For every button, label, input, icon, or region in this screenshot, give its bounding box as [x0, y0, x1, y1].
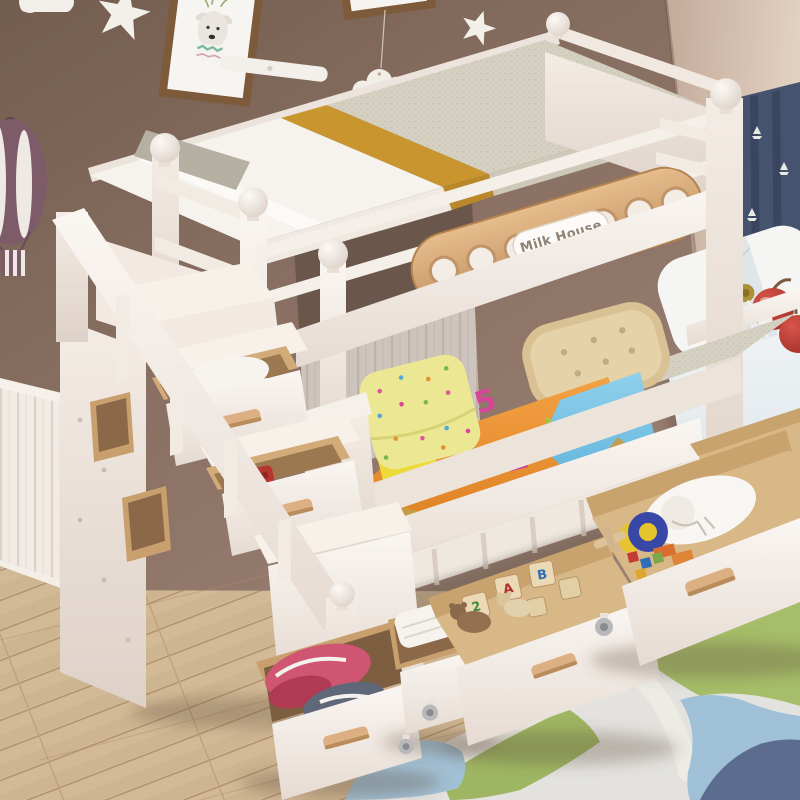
product-photo: Milk House 5 2 4 b: [0, 0, 800, 800]
paper-cloud-decal-icon: [19, 0, 74, 13]
wainscot-left: [0, 378, 66, 600]
